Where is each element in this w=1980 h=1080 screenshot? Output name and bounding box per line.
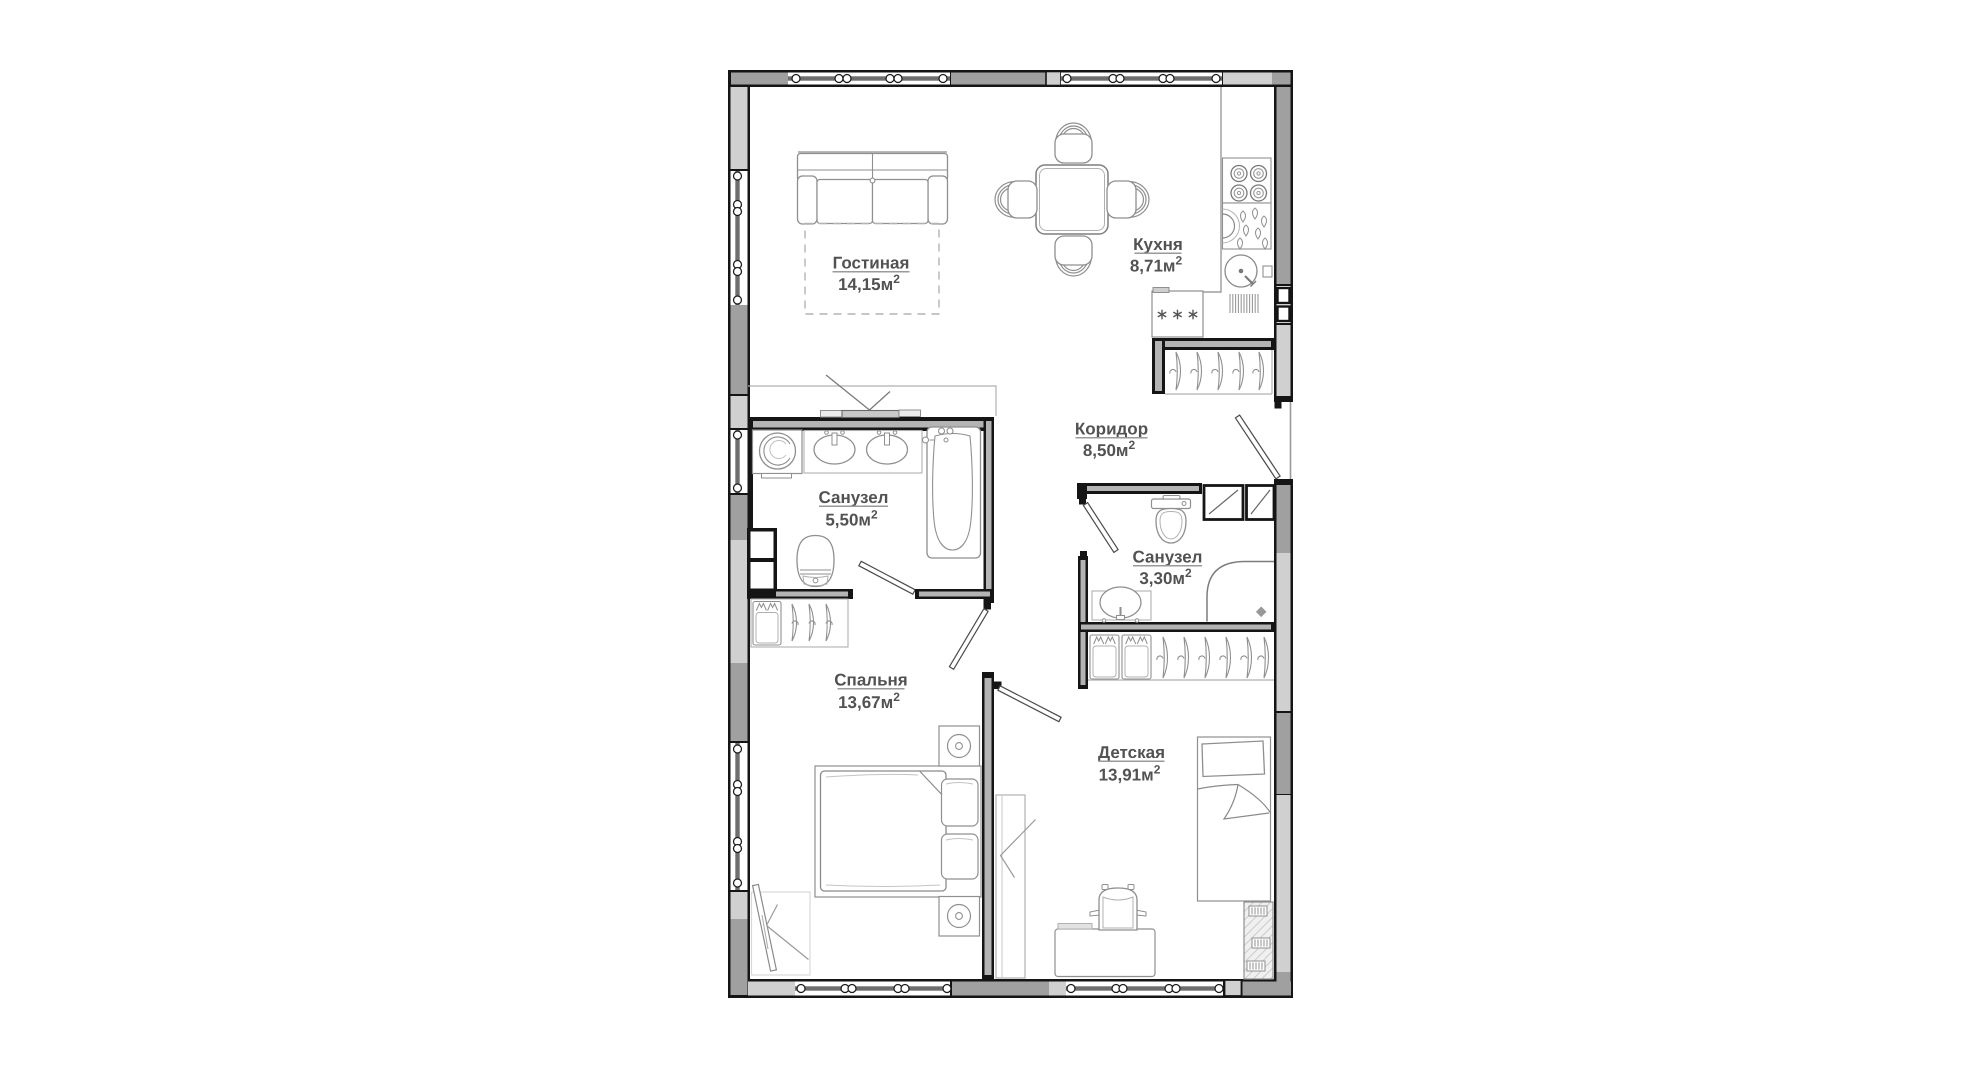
svg-text:Детская: Детская [1098,743,1165,762]
svg-text:3,30м2: 3,30м2 [1139,566,1192,588]
svg-text:Гостиная: Гостиная [833,254,910,273]
svg-text:Кухня: Кухня [1133,235,1183,254]
svg-text:Коридор: Коридор [1075,420,1148,439]
svg-text:13,67м2: 13,67м2 [838,690,900,712]
svg-text:Санузел: Санузел [1133,548,1203,567]
svg-text:8,71м2: 8,71м2 [1130,254,1183,276]
svg-text:Спальня: Спальня [834,671,907,690]
svg-text:13,91м2: 13,91м2 [1099,763,1161,785]
svg-text:8,50м2: 8,50м2 [1083,438,1136,460]
svg-text:14,15м2: 14,15м2 [838,272,900,294]
svg-text:Санузел: Санузел [819,488,889,507]
svg-text:5,50м2: 5,50м2 [825,508,878,530]
